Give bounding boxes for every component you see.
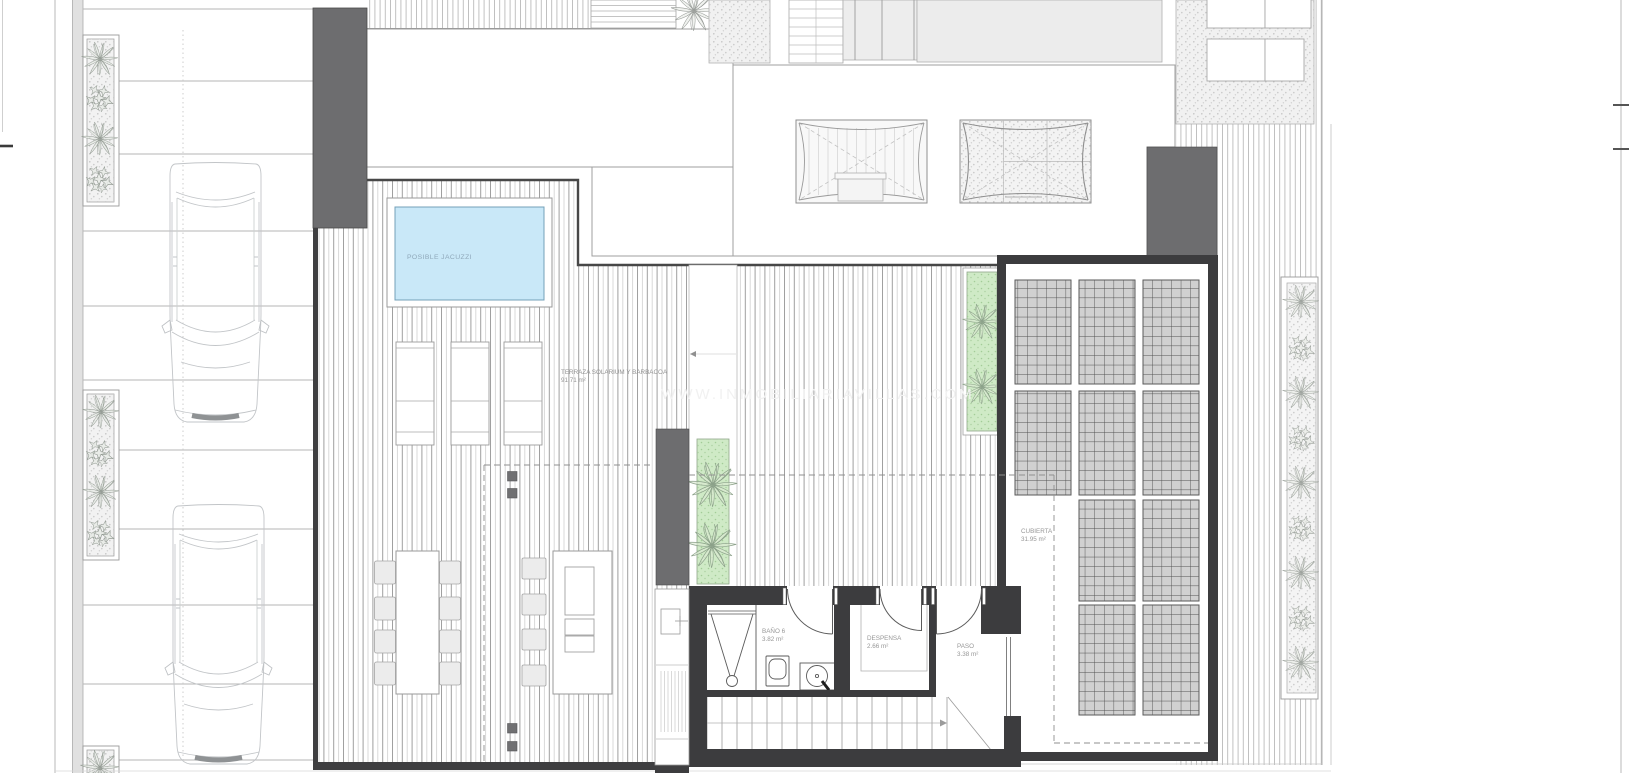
- svg-text:PASO: PASO: [957, 643, 974, 650]
- svg-text:BAÑO 6: BAÑO 6: [762, 626, 786, 635]
- svg-text:CUBIERTA: CUBIERTA: [1021, 528, 1053, 535]
- svg-text:POSIBLE JACUZZI: POSIBLE JACUZZI: [407, 254, 472, 261]
- svg-text:WWW.INMOBILIARIAVILLAS.COM: WWW.INMOBILIARIAVILLAS.COM: [661, 386, 975, 403]
- svg-text:2.66 m²: 2.66 m²: [867, 643, 888, 650]
- svg-text:3.82 m²: 3.82 m²: [762, 636, 783, 643]
- svg-text:91.71 m²: 91.71 m²: [561, 377, 586, 384]
- svg-text:DESPENSA: DESPENSA: [867, 635, 902, 642]
- svg-text:TERRAZA SOLARIUM Y BARBACOA: TERRAZA SOLARIUM Y BARBACOA: [561, 369, 668, 376]
- svg-text:3.38 m²: 3.38 m²: [957, 651, 978, 658]
- svg-text:31.95 m²: 31.95 m²: [1021, 536, 1046, 543]
